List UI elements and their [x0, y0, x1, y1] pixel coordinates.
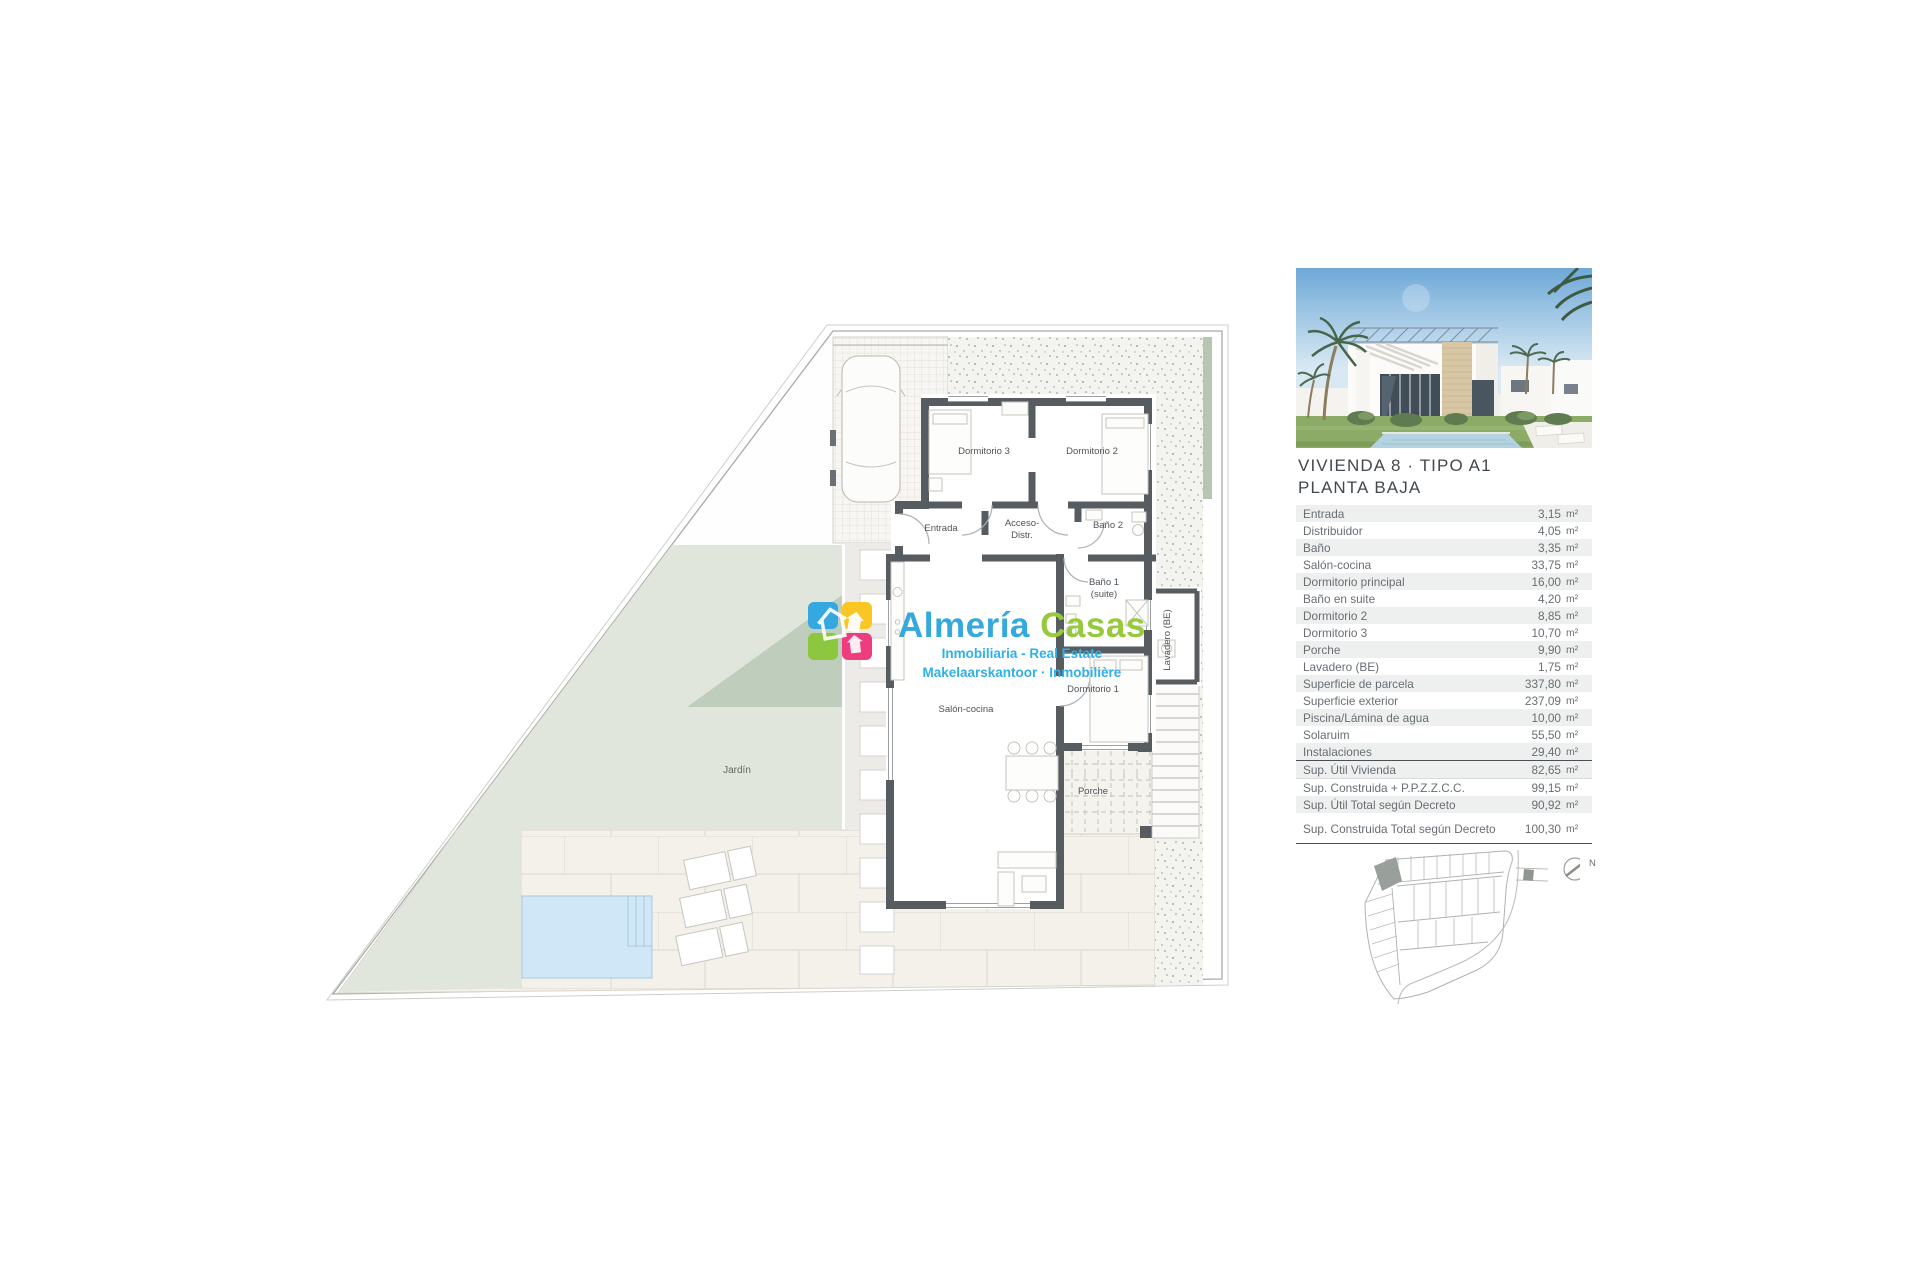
room-label-acceso-line1: Acceso-: [1005, 518, 1039, 529]
area-value: 3,15: [1515, 507, 1561, 521]
area-value: 55,50: [1515, 728, 1561, 742]
agency-tagline-2: Makelaarskantoor · Inmobilière: [898, 665, 1146, 681]
area-row: Dormitorio principal16,00m²: [1296, 573, 1592, 590]
area-label: Instalaciones: [1303, 745, 1515, 759]
room-label-bano1-line2: (suite): [1091, 589, 1117, 600]
area-unit: m²: [1561, 695, 1586, 707]
area-label: Porche: [1303, 643, 1515, 657]
area-label: Dormitorio 3: [1303, 626, 1515, 640]
room-label-dormitorio1: Dormitorio 1: [1067, 684, 1119, 696]
area-label: Entrada: [1303, 507, 1515, 521]
area-table: Entrada3,15m² Distribuidor4,05m² Baño3,3…: [1296, 505, 1592, 760]
area-row: Distribuidor4,05m²: [1296, 522, 1592, 539]
area-label: Piscina/Lámina de agua: [1303, 711, 1515, 725]
area-value: 1,75: [1515, 660, 1561, 674]
title-block: VIVIENDA 8 · TIPO A1 PLANTA BAJA: [1298, 455, 1592, 499]
area-unit: m²: [1561, 823, 1586, 835]
info-panel: VIVIENDA 8 · TIPO A1 PLANTA BAJA Entrada…: [1296, 268, 1592, 844]
area-label: Dormitorio principal: [1303, 575, 1515, 589]
area-row: Entrada3,15m²: [1296, 505, 1592, 522]
room-label-dormitorio2: Dormitorio 2: [1066, 446, 1118, 458]
room-label-jardin: Jardín: [723, 765, 751, 778]
page-title-line1: VIVIENDA 8 · TIPO A1: [1298, 455, 1592, 477]
area-value: 337,80: [1515, 677, 1561, 691]
area-unit: m²: [1561, 525, 1586, 537]
area-label: Sup. Construida Total según Decreto: [1303, 822, 1515, 836]
area-value: 9,90: [1515, 643, 1561, 657]
room-label-bano1-line1: Baño 1: [1089, 577, 1119, 588]
compass-icon: [1564, 858, 1580, 880]
area-row: Instalaciones29,40m²: [1296, 743, 1592, 760]
floor-plan-sheet: Dormitorio 3 Dormitorio 2 Entrada Acceso…: [0, 0, 1920, 1280]
room-label-lavadero: Lavadero (BE): [1162, 609, 1174, 670]
area-value: 100,30: [1515, 822, 1561, 836]
room-label-acceso: Acceso-Distr.: [1005, 518, 1039, 542]
area-row: Piscina/Lámina de agua10,00m²: [1296, 709, 1592, 726]
agency-name: Almería Casas: [898, 608, 1146, 643]
area-label: Sup. Útil Vivienda: [1303, 763, 1515, 777]
area-unit: m²: [1561, 764, 1586, 776]
area-label: Salón-cocina: [1303, 558, 1515, 572]
summary-row-construida-total: Sup. Construida Total según Decreto100,3…: [1296, 820, 1592, 837]
area-value: 90,92: [1515, 798, 1561, 812]
area-row: Salón-cocina33,75m²: [1296, 556, 1592, 573]
room-label-bano2: Baño 2: [1093, 520, 1123, 532]
area-value: 8,85: [1515, 609, 1561, 623]
area-value: 4,05: [1515, 524, 1561, 538]
villa-photo: [1296, 268, 1592, 448]
area-unit: m²: [1561, 559, 1586, 571]
area-label: Lavadero (BE): [1303, 660, 1515, 674]
area-label: Sup. Construida + P.P.Z.Z.C.C.: [1303, 781, 1515, 795]
area-label: Sup. Útil Total según Decreto: [1303, 798, 1515, 812]
area-unit: m²: [1561, 627, 1586, 639]
area-unit: m²: [1561, 729, 1586, 741]
room-label-salon: Salón-cocina: [939, 704, 994, 716]
summary-row-util-vivienda: Sup. Útil Vivienda82,65m²: [1296, 761, 1592, 778]
room-label-dormitorio3: Dormitorio 3: [958, 446, 1010, 458]
area-label: Baño: [1303, 541, 1515, 555]
area-row: Dormitorio 28,85m²: [1296, 607, 1592, 624]
area-value: 4,20: [1515, 592, 1561, 606]
area-label: Dormitorio 2: [1303, 609, 1515, 623]
agency-logo-icon: [808, 602, 874, 662]
compass-north-label: N: [1589, 858, 1596, 869]
area-value: 33,75: [1515, 558, 1561, 572]
area-value: 10,00: [1515, 711, 1561, 725]
area-unit: m²: [1561, 508, 1586, 520]
area-unit: m²: [1561, 610, 1586, 622]
area-unit: m²: [1561, 542, 1586, 554]
area-row: Lavadero (BE)1,75m²: [1296, 658, 1592, 675]
summary-row-construida-ppzzcc: Sup. Construida + P.P.Z.Z.C.C.99,15m²: [1296, 779, 1592, 796]
agency-name-first: Almería: [898, 606, 1030, 645]
area-unit: m²: [1561, 782, 1586, 794]
page-title-line2: PLANTA BAJA: [1298, 477, 1592, 499]
room-label-entrada: Entrada: [924, 523, 957, 535]
area-value: 99,15: [1515, 781, 1561, 795]
area-row: Baño3,35m²: [1296, 539, 1592, 556]
area-unit: m²: [1561, 712, 1586, 724]
area-unit: m²: [1561, 746, 1586, 758]
site-plan-map: [1350, 845, 1580, 1010]
area-label: Solaruim: [1303, 728, 1515, 742]
area-unit: m²: [1561, 799, 1586, 811]
agency-watermark: Almería Casas Inmobiliaria - Real Estate…: [808, 602, 1146, 681]
area-unit: m²: [1561, 593, 1586, 605]
area-value: 3,35: [1515, 541, 1561, 555]
area-value: 29,40: [1515, 745, 1561, 759]
area-label: Baño en suite: [1303, 592, 1515, 606]
area-row: Porche9,90m²: [1296, 641, 1592, 658]
summary-row-util-total: Sup. Útil Total según Decreto90,92m²: [1296, 796, 1592, 813]
area-row: Dormitorio 310,70m²: [1296, 624, 1592, 641]
agency-name-second: Casas: [1040, 606, 1146, 645]
area-label: Superficie exterior: [1303, 694, 1515, 708]
area-row: Superficie exterior237,09m²: [1296, 692, 1592, 709]
area-row: Baño en suite4,20m²: [1296, 590, 1592, 607]
area-label: Distribuidor: [1303, 524, 1515, 538]
area-unit: m²: [1561, 576, 1586, 588]
area-row: Solaruim55,50m²: [1296, 726, 1592, 743]
area-value: 10,70: [1515, 626, 1561, 640]
room-label-porche: Porche: [1078, 786, 1108, 798]
area-value: 16,00: [1515, 575, 1561, 589]
agency-logo-text: Almería Casas Inmobiliaria - Real Estate…: [898, 608, 1146, 681]
agency-tagline-1: Inmobiliaria - Real Estate: [898, 646, 1146, 662]
area-row: Superficie de parcela337,80m²: [1296, 675, 1592, 692]
area-value: 237,09: [1515, 694, 1561, 708]
area-unit: m²: [1561, 661, 1586, 673]
area-unit: m²: [1561, 644, 1586, 656]
room-label-acceso-line2: Distr.: [1011, 530, 1033, 541]
area-label: Superficie de parcela: [1303, 677, 1515, 691]
area-unit: m²: [1561, 678, 1586, 690]
area-value: 82,65: [1515, 763, 1561, 777]
room-label-bano1: Baño 1(suite): [1089, 577, 1119, 601]
